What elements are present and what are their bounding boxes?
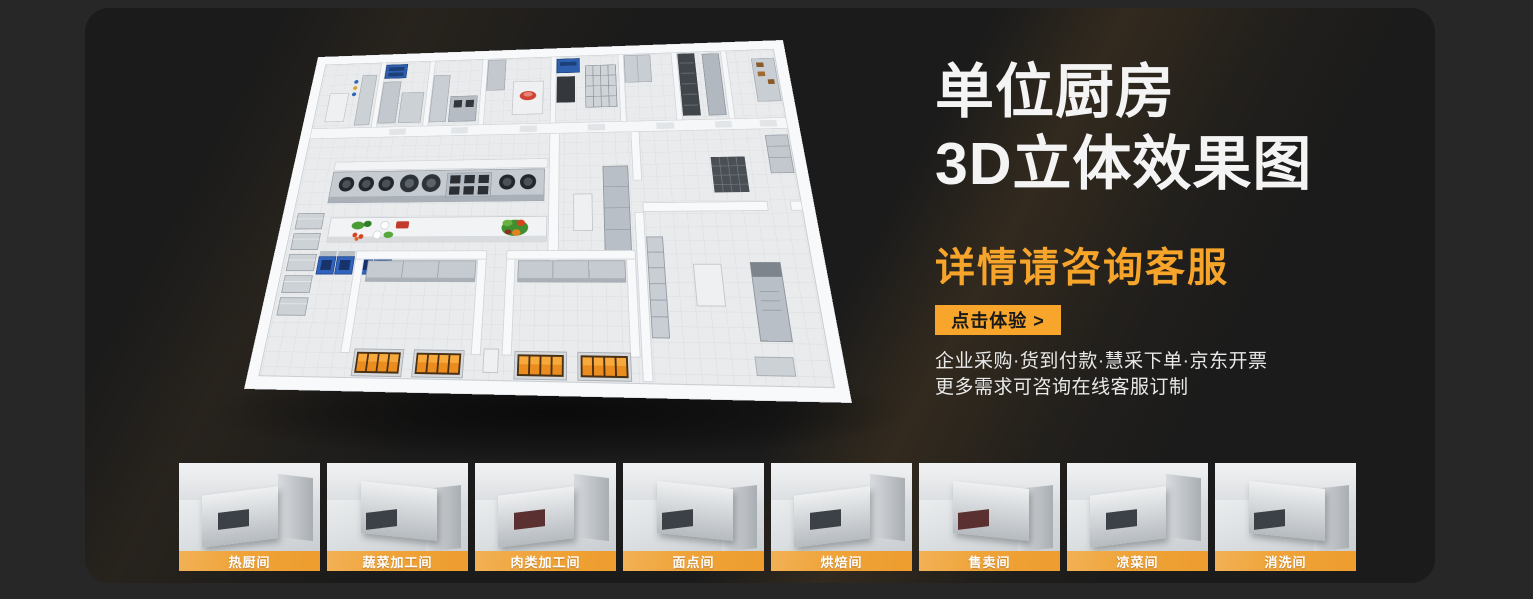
thumbnail-photo-detail: [1254, 509, 1285, 530]
thumbnail-label: 凉菜间: [1116, 552, 1158, 571]
thumbnail-photo-detail: [366, 509, 397, 530]
thumbnail-label-band: 凉菜间: [1067, 551, 1208, 571]
thumbnail-label-band: 肉类加工间: [475, 551, 616, 571]
thumbnail-item-1[interactable]: 热厨间: [179, 463, 320, 571]
thumbnail-item-3[interactable]: 肉类加工间: [475, 463, 616, 571]
thumbnail-label: 消洗间: [1264, 552, 1306, 571]
hero-note-line1: 企业采购·货到付款·慧采下单·京东开票: [935, 350, 1415, 373]
thumbnail-photo-equipment: [657, 481, 733, 541]
thumbnail-photo-equipment: [1249, 481, 1325, 541]
thumbnail-photo-equipment: [361, 481, 437, 541]
cta-button[interactable]: 点击体验 >: [935, 305, 1061, 335]
thumbnail-label-band: 烘焙间: [771, 551, 912, 571]
hero-subtitle: 详情请咨询客服: [935, 246, 1415, 290]
thumbnail-photo-detail: [958, 509, 989, 530]
thumbnail-label-band: 热厨间: [179, 551, 320, 571]
thumbnail-photo-detail: [662, 509, 693, 530]
thumbnail-label-band: 消洗间: [1215, 551, 1356, 571]
hero-title-line1: 单位厨房: [935, 56, 1415, 128]
thumbnail-label-band: 面点间: [623, 551, 764, 571]
thumbnail-label-band: 蔬菜加工间: [327, 551, 468, 571]
hero-text-block: 单位厨房 3D立体效果图 详情请咨询客服 点击体验 > 企业采购·货到付款·慧采…: [935, 56, 1415, 399]
thumbnail-item-2[interactable]: 蔬菜加工间: [327, 463, 468, 571]
thumbnail-photo-cabinet: [870, 474, 905, 541]
banner: 单位厨房 3D立体效果图 详情请咨询客服 点击体验 > 企业采购·货到付款·慧采…: [0, 0, 1533, 599]
thumbnail-item-4[interactable]: 面点间: [623, 463, 764, 571]
floorplan-drawing: [244, 40, 852, 403]
hero-note-line2: 更多需求可咨询在线客服订制: [935, 376, 1415, 399]
thumbnail-strip: 热厨间 蔬菜加工间 肉类加工间: [179, 463, 1356, 571]
thumbnail-item-5[interactable]: 烘焙间: [771, 463, 912, 571]
thumbnail-label: 售卖间: [968, 552, 1010, 571]
thumbnail-photo-cabinet: [574, 474, 609, 541]
thumbnail-photo-detail: [514, 509, 545, 530]
thumbnail-label: 肉类加工间: [510, 552, 580, 571]
thumbnail-photo-detail: [1106, 509, 1137, 530]
hero-title-line2: 3D立体效果图: [935, 128, 1415, 200]
thumbnail-photo-equipment: [953, 481, 1029, 541]
thumbnail-photo-detail: [810, 509, 841, 530]
thumbnail-item-6[interactable]: 售卖间: [919, 463, 1060, 571]
thumbnail-label: 烘焙间: [820, 552, 862, 571]
thumbnail-item-7[interactable]: 凉菜间: [1067, 463, 1208, 571]
kitchen-3d-floorplan: [244, 40, 852, 403]
thumbnail-label: 热厨间: [228, 552, 270, 571]
thumbnail-label: 蔬菜加工间: [362, 552, 432, 571]
thumbnail-photo-cabinet: [1166, 474, 1201, 541]
thumbnail-item-8[interactable]: 消洗间: [1215, 463, 1356, 571]
thumbnail-label: 面点间: [672, 552, 714, 571]
thumbnail-photo-detail: [218, 509, 249, 530]
thumbnail-label-band: 售卖间: [919, 551, 1060, 571]
thumbnail-photo-cabinet: [278, 474, 313, 541]
